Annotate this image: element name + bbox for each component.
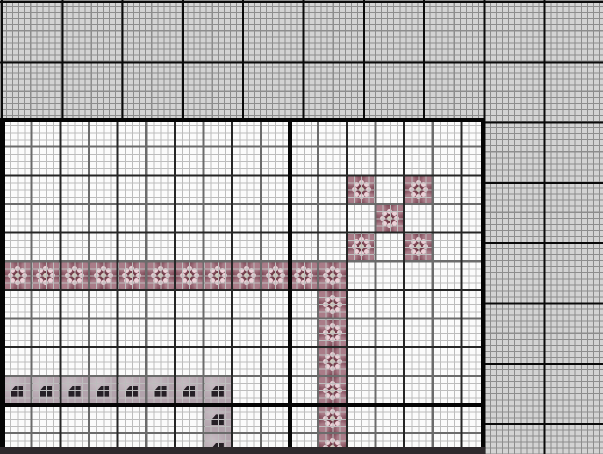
flower-dots-icon (158, 273, 163, 278)
corner-cut-square-icon (68, 386, 81, 397)
corner-cut-square-icon (154, 386, 167, 397)
flower-dots-icon (273, 273, 278, 278)
flower-stitch[interactable] (33, 262, 60, 289)
corner-cut-square-icon (125, 386, 138, 397)
flower-stitch[interactable] (319, 406, 346, 433)
flower-dots-icon (129, 273, 134, 278)
flower-stitch[interactable] (233, 262, 260, 289)
corner-cut-square-icon (211, 414, 224, 425)
flower-stitch[interactable] (348, 234, 375, 261)
flower-dots-icon (72, 273, 77, 278)
half-stitch[interactable] (61, 377, 88, 404)
flower-stitch[interactable] (376, 205, 403, 232)
flower-stitch[interactable] (176, 262, 203, 289)
flower-dots-icon (330, 273, 335, 278)
corner-cut-square-icon (96, 386, 109, 397)
flower-dots-icon (330, 416, 335, 421)
half-stitch[interactable] (90, 377, 117, 404)
flower-dots-icon (330, 330, 335, 335)
corner-cut-square-icon (211, 386, 224, 397)
flower-dots-icon (15, 273, 20, 278)
flower-dots-icon (215, 273, 220, 278)
flower-dots-icon (330, 445, 335, 450)
flower-stitch[interactable] (319, 320, 346, 347)
corner-cut-square-icon (10, 386, 23, 397)
flower-dots-icon (359, 244, 364, 249)
flower-dots-icon (301, 273, 306, 278)
flower-stitch[interactable] (405, 234, 432, 261)
flower-stitch[interactable] (4, 262, 31, 289)
flower-stitch[interactable] (319, 348, 346, 375)
flower-stitch[interactable] (319, 291, 346, 318)
flower-stitch[interactable] (319, 434, 346, 454)
flower-stitch[interactable] (319, 377, 346, 404)
half-stitch[interactable] (205, 406, 232, 433)
pattern-area[interactable] (0, 118, 485, 454)
corner-cut-square-icon (182, 386, 195, 397)
pattern-canvas[interactable] (0, 0, 603, 454)
corner-cut-square-icon (39, 386, 52, 397)
flower-dots-icon (330, 359, 335, 364)
flower-stitch[interactable] (90, 262, 117, 289)
half-stitch[interactable] (176, 377, 203, 404)
flower-dots-icon (330, 302, 335, 307)
flower-dots-icon (416, 244, 421, 249)
flower-stitch[interactable] (147, 262, 174, 289)
half-stitch[interactable] (205, 377, 232, 404)
flower-stitch[interactable] (119, 262, 146, 289)
flower-stitch[interactable] (262, 262, 289, 289)
flower-stitch[interactable] (205, 262, 232, 289)
flower-stitch[interactable] (319, 262, 346, 289)
half-stitch[interactable] (33, 377, 60, 404)
half-stitch[interactable] (147, 377, 174, 404)
flower-dots-icon (330, 388, 335, 393)
flower-stitch[interactable] (348, 176, 375, 203)
flower-stitch[interactable] (291, 262, 318, 289)
flower-dots-icon (101, 273, 106, 278)
half-stitch[interactable] (119, 377, 146, 404)
corner-cut-square-icon (211, 443, 224, 454)
flower-dots-icon (387, 216, 392, 221)
half-stitch[interactable] (205, 434, 232, 454)
flower-stitch[interactable] (405, 176, 432, 203)
flower-dots-icon (416, 187, 421, 192)
stitch-layer (0, 118, 485, 454)
flower-dots-icon (359, 187, 364, 192)
flower-dots-icon (244, 273, 249, 278)
flower-stitch[interactable] (61, 262, 88, 289)
half-stitch[interactable] (4, 377, 31, 404)
flower-dots-icon (187, 273, 192, 278)
flower-dots-icon (43, 273, 48, 278)
